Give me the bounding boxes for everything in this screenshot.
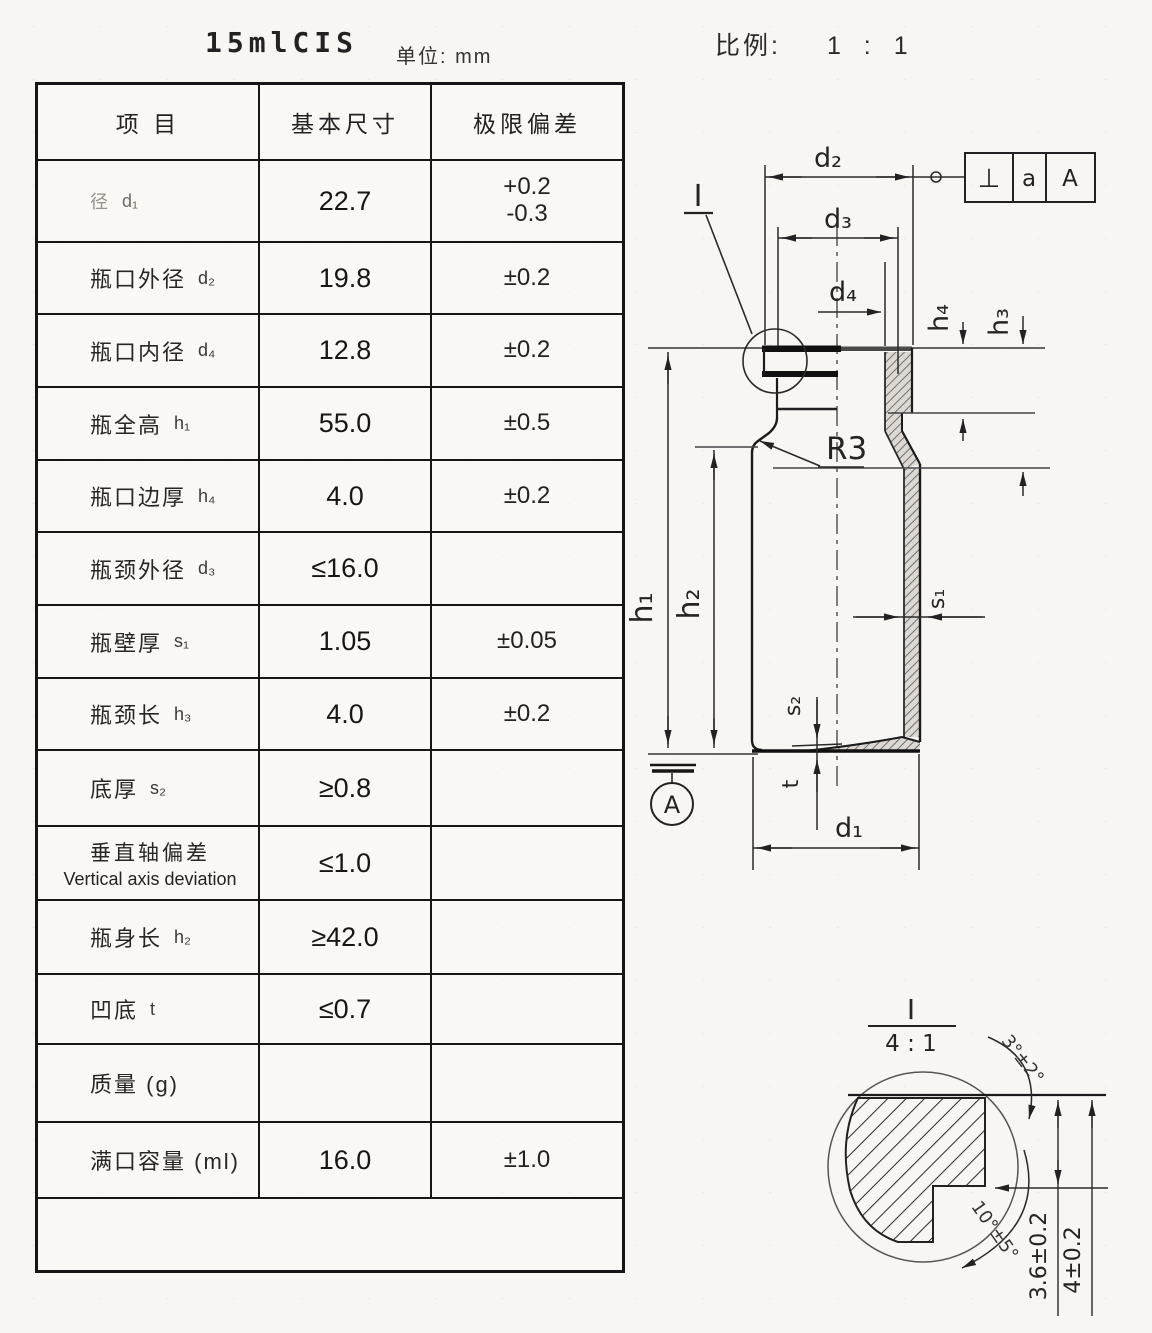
dim-h1-label: h₁ [625,592,660,623]
dim-s2-label: s₂ [781,696,806,716]
dim-h2-label: h₂ [672,588,707,619]
detail-dim-4-label: 4±0.2 [1061,1226,1086,1293]
detail-view-scale: 4 : 1 [885,1031,937,1057]
dim-h3-label: h₃ [984,308,1015,336]
detail-I-marker: I [684,179,807,393]
dim-d4-label: d₄ [829,277,857,308]
dim-h4-label: h₄ [924,304,955,332]
dim-d1 [753,754,919,870]
fcf-datum: A [1062,166,1078,192]
vial-technical-drawing: d₂ d₃ d₄ h₄ h₃ ⊥ a A I [0,0,1152,1333]
dim-d2-label: d₂ [814,143,842,174]
dim-d3-label: d₃ [824,204,852,235]
detail-I-marker-label: I [694,179,703,214]
dim-s1-label: s₁ [925,589,950,609]
detail-angle-top-label: 3°±2° [997,1031,1048,1088]
scanned-spec-sheet: { "page": { "title": "15mlCIS", "unit_la… [0,0,1152,1333]
feature-control-frame: ⊥ a A [965,153,1095,202]
datum-A: A [650,765,696,825]
detail-lip-section [846,1098,985,1242]
detail-view-label: I [907,993,915,1026]
detail-view: I 4 : 1 3.6±0.2 4±0.2 3°±2° 10°±5° [828,993,1108,1316]
detail-angle-bottom-label: 10°±5° [967,1197,1023,1264]
datum-A-label: A [664,791,681,819]
dim-d1-label: d₁ [835,813,863,844]
fcf-tolerance: a [1022,166,1036,192]
dim-r3-label: R3 [826,431,867,467]
dim-t-label: t [779,779,804,788]
perpendicularity-icon: ⊥ [978,164,1001,194]
detail-dim-36-label: 3.6±0.2 [1027,1212,1052,1300]
